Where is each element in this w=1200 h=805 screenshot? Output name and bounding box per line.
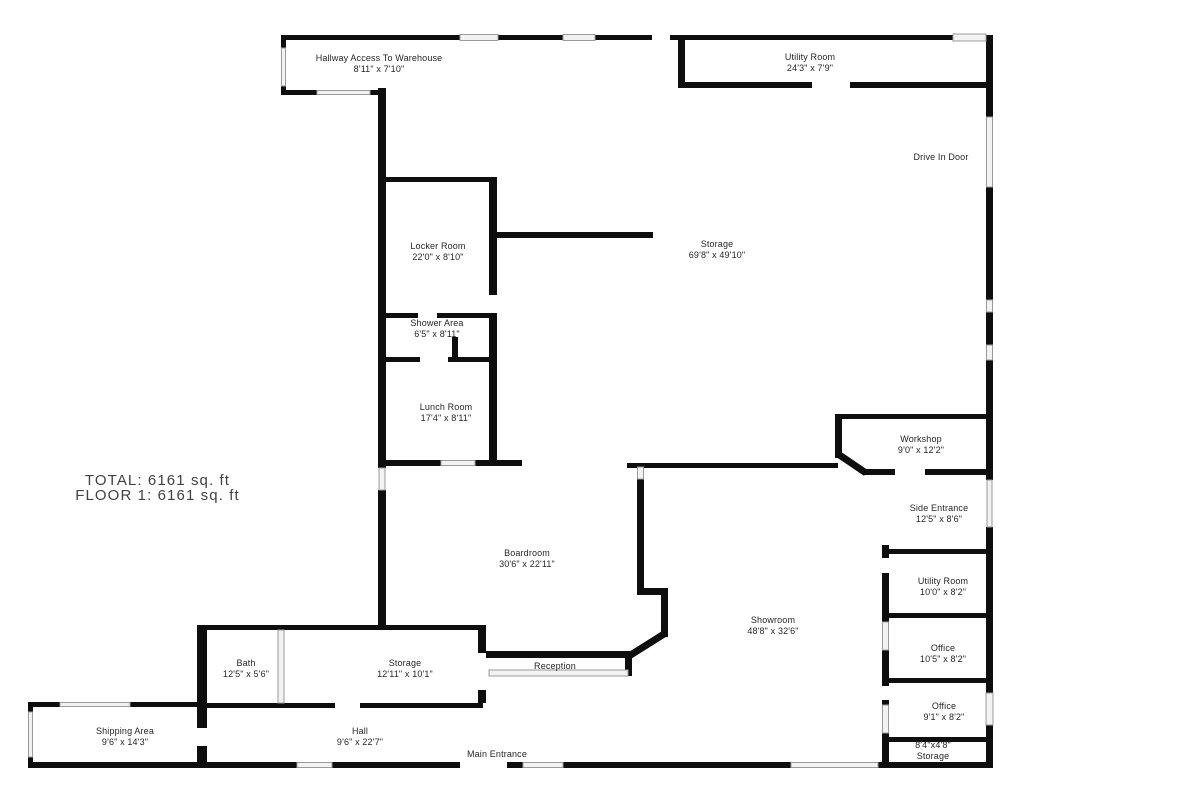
room-label-storage-mid: Storage 12'11" x 10'1"	[325, 658, 485, 680]
label-main-entrance: Main Entrance	[417, 749, 577, 760]
room-dimensions: 48'8" x 32'6"	[693, 626, 853, 637]
room-label-boardroom: Boardroom 30'6" x 22'11"	[447, 548, 607, 570]
room-dimensions: 24'3" x 7'9"	[730, 63, 890, 74]
room-label-lunch-room: Lunch Room 17'4" x 8'11"	[366, 402, 526, 424]
room-label-workshop: Workshop 9'0" x 12'2"	[841, 434, 1001, 456]
room-name: Showroom	[693, 615, 853, 626]
room-label-locker-room: Locker Room 22'0" x 8'10"	[358, 241, 518, 263]
room-dimensions: 9'6" x 22'7"	[280, 737, 440, 748]
floor-plan: Hallway Access To Warehouse 8'11" x 7'10…	[0, 0, 1200, 805]
room-name: Hallway Access To Warehouse	[299, 53, 459, 64]
room-label-hallway-access-to-warehouse: Hallway Access To Warehouse 8'11" x 7'10…	[299, 53, 459, 75]
room-label-utility-room-top: Utility Room 24'3" x 7'9"	[730, 52, 890, 74]
room-label-hall: Hall 9'6" x 22'7"	[280, 726, 440, 748]
room-label-storage-bottom-right: 8'4"x4'8" Storage	[853, 740, 1013, 762]
room-name: Storage	[637, 239, 797, 250]
room-name: Lunch Room	[366, 402, 526, 413]
room-label-utility-room-right: Utility Room 10'0" x 8'2"	[863, 576, 1023, 598]
room-name: Storage	[325, 658, 485, 669]
room-dimensions: 30'6" x 22'11"	[447, 559, 607, 570]
room-name: Office	[863, 643, 1023, 654]
room-dimensions: 22'0" x 8'10"	[358, 252, 518, 263]
room-dimensions: 10'0" x 8'2"	[863, 587, 1023, 598]
room-name: Locker Room	[358, 241, 518, 252]
room-name: Office	[864, 701, 1024, 712]
room-name: Shower Area	[357, 318, 517, 329]
room-dimensions: 9'0" x 12'2"	[841, 445, 1001, 456]
room-dimensions: 17'4" x 8'11"	[366, 413, 526, 424]
room-label-office-lower: Office 9'1" x 8'2"	[864, 701, 1024, 723]
room-label-side-entrance: Side Entrance 12'5" x 8'6"	[859, 503, 1019, 525]
room-name: Shipping Area	[45, 726, 205, 737]
room-dimensions: 9'6" x 14'3"	[45, 737, 205, 748]
floorplan-walls-drawing	[0, 0, 1200, 805]
room-dimensions: 6'5" x 8'11"	[357, 329, 517, 340]
room-name: Workshop	[841, 434, 1001, 445]
room-dimensions: 12'11" x 10'1"	[325, 669, 485, 680]
room-dimensions: 9'1" x 8'2"	[864, 712, 1024, 723]
room-label-shower-area: Shower Area 6'5" x 8'11"	[357, 318, 517, 340]
room-name: Storage	[853, 751, 1013, 762]
room-label-shipping-area: Shipping Area 9'6" x 14'3"	[45, 726, 205, 748]
room-label-storage-main: Storage 69'8" x 49'10"	[637, 239, 797, 261]
room-label-bath: Bath 12'5" x 5'6"	[166, 658, 326, 680]
label-reception: Reception	[475, 661, 635, 672]
room-label-office-upper: Office 10'5" x 8'2"	[863, 643, 1023, 665]
area-summary: TOTAL: 6161 sq. ft FLOOR 1: 6161 sq. ft	[40, 474, 275, 503]
room-name: Utility Room	[730, 52, 890, 63]
room-name: Side Entrance	[859, 503, 1019, 514]
room-name: Utility Room	[863, 576, 1023, 587]
room-name: Bath	[166, 658, 326, 669]
room-label-showroom: Showroom 48'8" x 32'6"	[693, 615, 853, 637]
room-name: Hall	[280, 726, 440, 737]
room-dimensions: 12'5" x 5'6"	[166, 669, 326, 680]
room-name: Boardroom	[447, 548, 607, 559]
room-dimensions: 10'5" x 8'2"	[863, 654, 1023, 665]
room-dimensions: 8'11" x 7'10"	[299, 64, 459, 75]
room-dimensions: 69'8" x 49'10"	[637, 250, 797, 261]
label-drive-in-door: Drive In Door	[861, 152, 1021, 163]
room-dimensions: 8'4"x4'8"	[853, 740, 1013, 751]
room-dimensions: 12'5" x 8'6"	[859, 514, 1019, 525]
floor1-area-text: FLOOR 1: 6161 sq. ft	[40, 489, 275, 504]
